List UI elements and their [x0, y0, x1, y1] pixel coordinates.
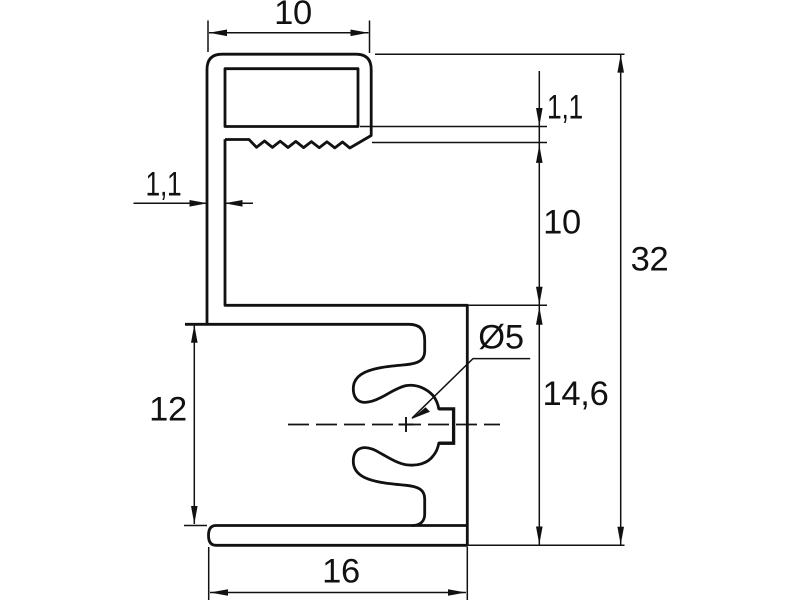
svg-text:12: 12: [149, 391, 187, 429]
svg-text:Ø5: Ø5: [478, 319, 523, 357]
svg-text:1,1: 1,1: [547, 89, 583, 127]
svg-text:10: 10: [274, 0, 312, 32]
svg-text:1,1: 1,1: [146, 165, 182, 203]
svg-text:32: 32: [631, 241, 669, 279]
svg-text:10: 10: [543, 204, 581, 242]
svg-text:14,6: 14,6: [543, 375, 609, 413]
svg-text:16: 16: [322, 553, 360, 591]
